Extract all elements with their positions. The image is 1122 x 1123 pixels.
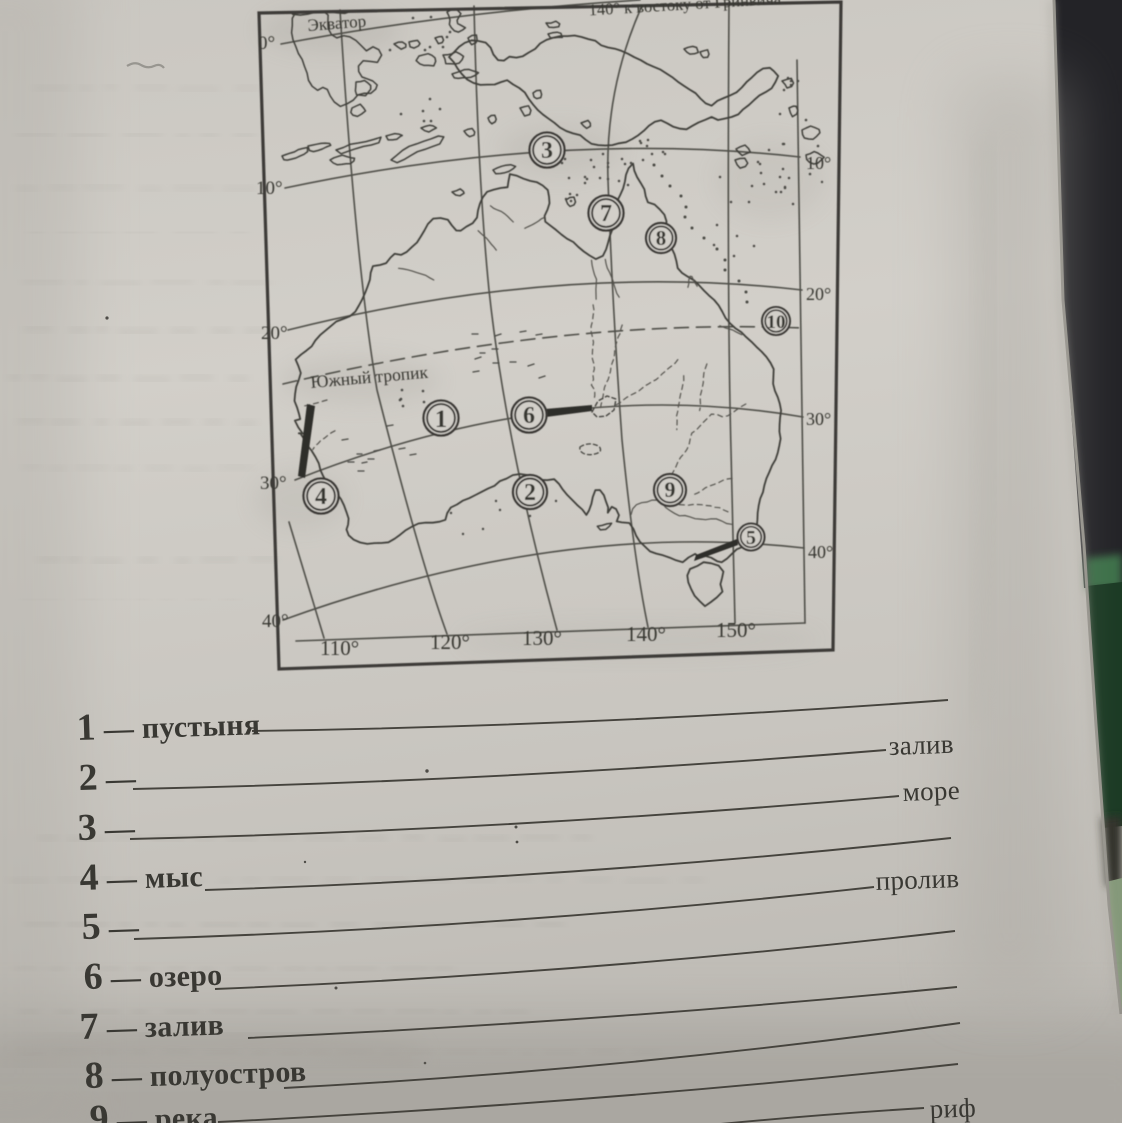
svg-text:3: 3 (541, 138, 553, 164)
svg-text:8: 8 (656, 226, 667, 250)
svg-text:140°: 140° (626, 622, 666, 646)
svg-text:10: 10 (767, 312, 786, 333)
svg-text:залив: залив (888, 729, 954, 761)
svg-text:5: 5 (746, 527, 756, 549)
svg-text:40°: 40° (262, 611, 289, 632)
svg-text:150°: 150° (716, 618, 756, 642)
svg-text:0°: 0° (258, 33, 275, 54)
svg-text:40°: 40° (808, 542, 833, 562)
svg-text:риф: риф (929, 1092, 976, 1123)
svg-text:1: 1 (435, 406, 448, 433)
svg-text:7: 7 (600, 201, 612, 227)
svg-text:20°: 20° (806, 284, 831, 304)
svg-text:20°: 20° (261, 323, 288, 344)
svg-text:море: море (902, 775, 960, 807)
svg-text:110°: 110° (320, 636, 359, 660)
svg-text:30°: 30° (806, 409, 831, 429)
svg-text:120°: 120° (430, 630, 470, 654)
svg-text:10°: 10° (256, 178, 283, 199)
svg-text:9: 9 (665, 477, 676, 502)
svg-text:130°: 130° (522, 626, 562, 650)
svg-text:4: 4 (315, 484, 327, 510)
svg-text:2: 2 (524, 480, 536, 506)
svg-text:пролив: пролив (875, 863, 960, 896)
svg-text:6: 6 (523, 403, 535, 429)
svg-text:30°: 30° (260, 473, 287, 494)
svg-text:10°: 10° (806, 153, 831, 173)
